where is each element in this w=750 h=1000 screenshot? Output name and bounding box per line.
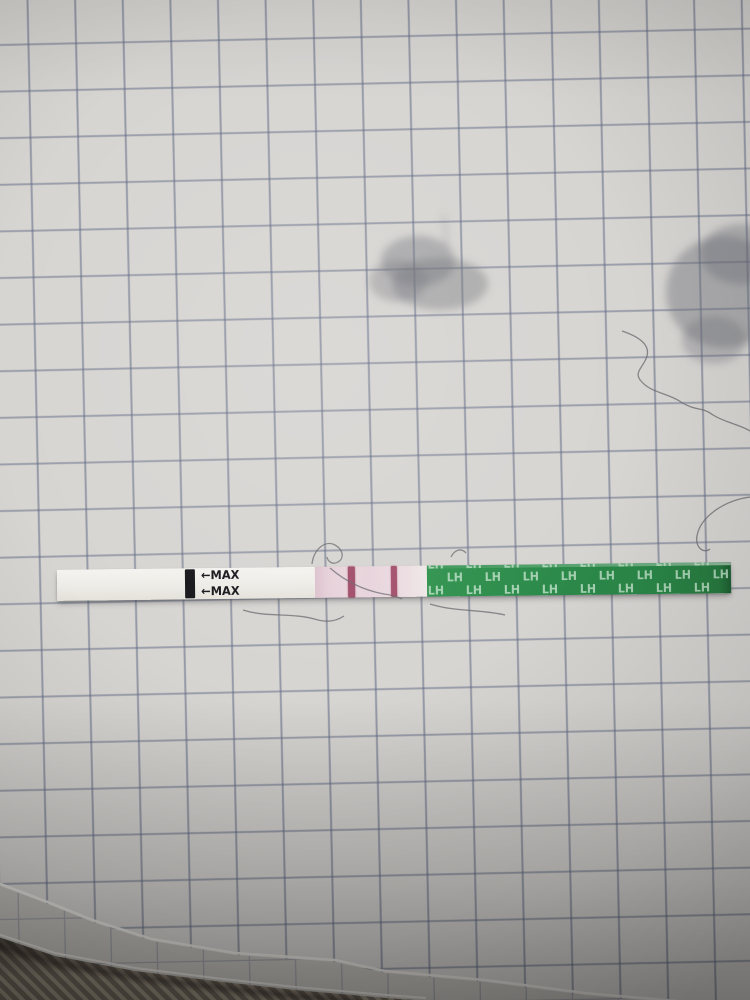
lh-glyph: LH [655,562,671,568]
lh-glyph: LH [485,571,501,583]
lh-glyph: LH [580,583,596,595]
lh-glyph: LH [693,562,709,567]
lh-glyph: LH [713,568,729,580]
strip-handle: LHLHLHLHLHLHLHLHLHLHLHLHLHLHLHLHLHLHLHLH… [427,562,731,596]
max-labels: ←MAX ←MAX [201,567,311,599]
control-line [391,566,397,597]
max-label-top: ←MAX [201,568,306,581]
lh-glyph: LH [523,570,539,582]
lh-glyph: LH [428,584,444,596]
max-marker-bar [185,569,195,598]
lh-glyph: LH [466,584,482,596]
lh-glyph: LH [579,562,595,569]
lh-glyph: LH [675,569,691,581]
test-line [348,566,355,597]
lh-glyph: LH [617,562,633,568]
max-label-bottom: ←MAX [201,584,306,597]
photo-scene: ←MAX ←MAX LHLHLHLHLHLHLHLHLHLHLHLHLHLHLH… [0,0,750,1000]
lh-glyph: LH [618,582,634,594]
strip-sample-pad: ←MAX ←MAX [57,567,315,601]
lh-glyph: LH [599,569,615,581]
graph-paper [0,0,750,1000]
lh-glyph: LH [561,570,577,582]
lh-glyph: LH [656,582,672,594]
lh-glyph: LH [504,584,520,596]
lh-pattern: LHLHLHLHLHLHLHLHLHLHLHLHLHLHLHLHLHLHLHLH… [427,562,731,596]
strip-result-window [315,566,427,598]
lh-glyph: LH [542,583,558,595]
lh-glyph: LH [694,581,710,593]
lh-glyph: LH [637,569,653,581]
lh-glyph: LH [447,571,463,583]
